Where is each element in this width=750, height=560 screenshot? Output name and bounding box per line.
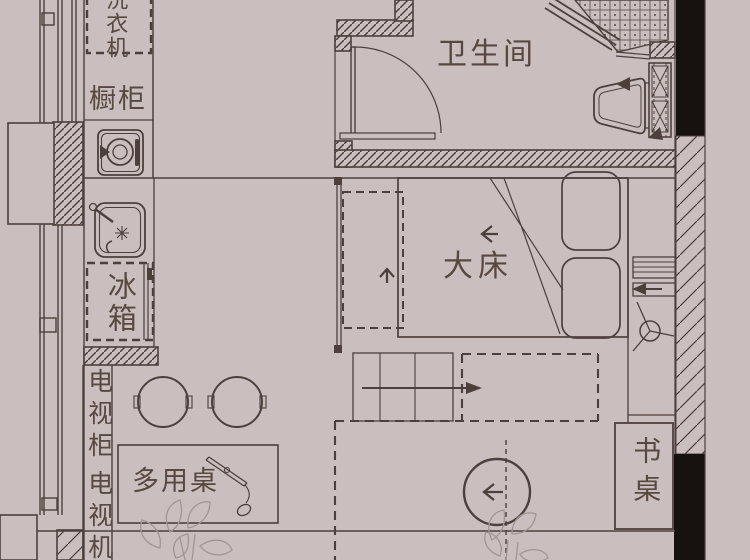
tv-label: 电视机: [84, 470, 113, 560]
left-wall-piers: [0, 122, 83, 560]
pillow-icon: [562, 172, 620, 250]
washing-machine-label: 洗衣机: [103, 0, 128, 60]
bed-label: 大床: [443, 250, 513, 285]
stove-burner-icon: [98, 130, 143, 175]
wardrobe-panel: [334, 177, 342, 353]
right-wall: [674, 0, 705, 560]
shower-wall-pier: [650, 42, 675, 58]
bathroom-label: 卫生间: [437, 38, 536, 73]
left-window-wall: [40, 0, 84, 560]
kitchen-sink-icon: [90, 203, 146, 257]
round-table-icon: [464, 459, 530, 525]
folding-unit: [343, 192, 403, 328]
stool-icon: [134, 377, 266, 427]
door-swing-icon: [340, 47, 441, 139]
kitchen-wall-segment: [84, 347, 158, 365]
pipe-shaft-icon: [649, 63, 671, 137]
fridge-label: 冰箱: [102, 271, 135, 335]
double-bed: [398, 172, 628, 338]
bathroom-south-wall: [335, 141, 677, 167]
radiator-icon: [632, 257, 677, 296]
plant-icon: [141, 500, 232, 560]
ceiling-fan-icon: [633, 302, 674, 351]
desk-label: 书桌: [629, 436, 661, 512]
bathroom-north-wall: [335, 0, 413, 51]
cabinet-label: 橱柜: [89, 84, 147, 115]
bed-side-line: [628, 178, 675, 423]
tv-cabinet-label: 电视柜: [84, 368, 113, 464]
multi-table-label: 多用桌: [132, 466, 219, 497]
pillow-icon: [562, 258, 620, 338]
floor-plan-canvas: 洗衣机 橱柜 冰箱 电视柜 电视机 多用桌 卫生间 大床 书桌: [0, 0, 750, 560]
